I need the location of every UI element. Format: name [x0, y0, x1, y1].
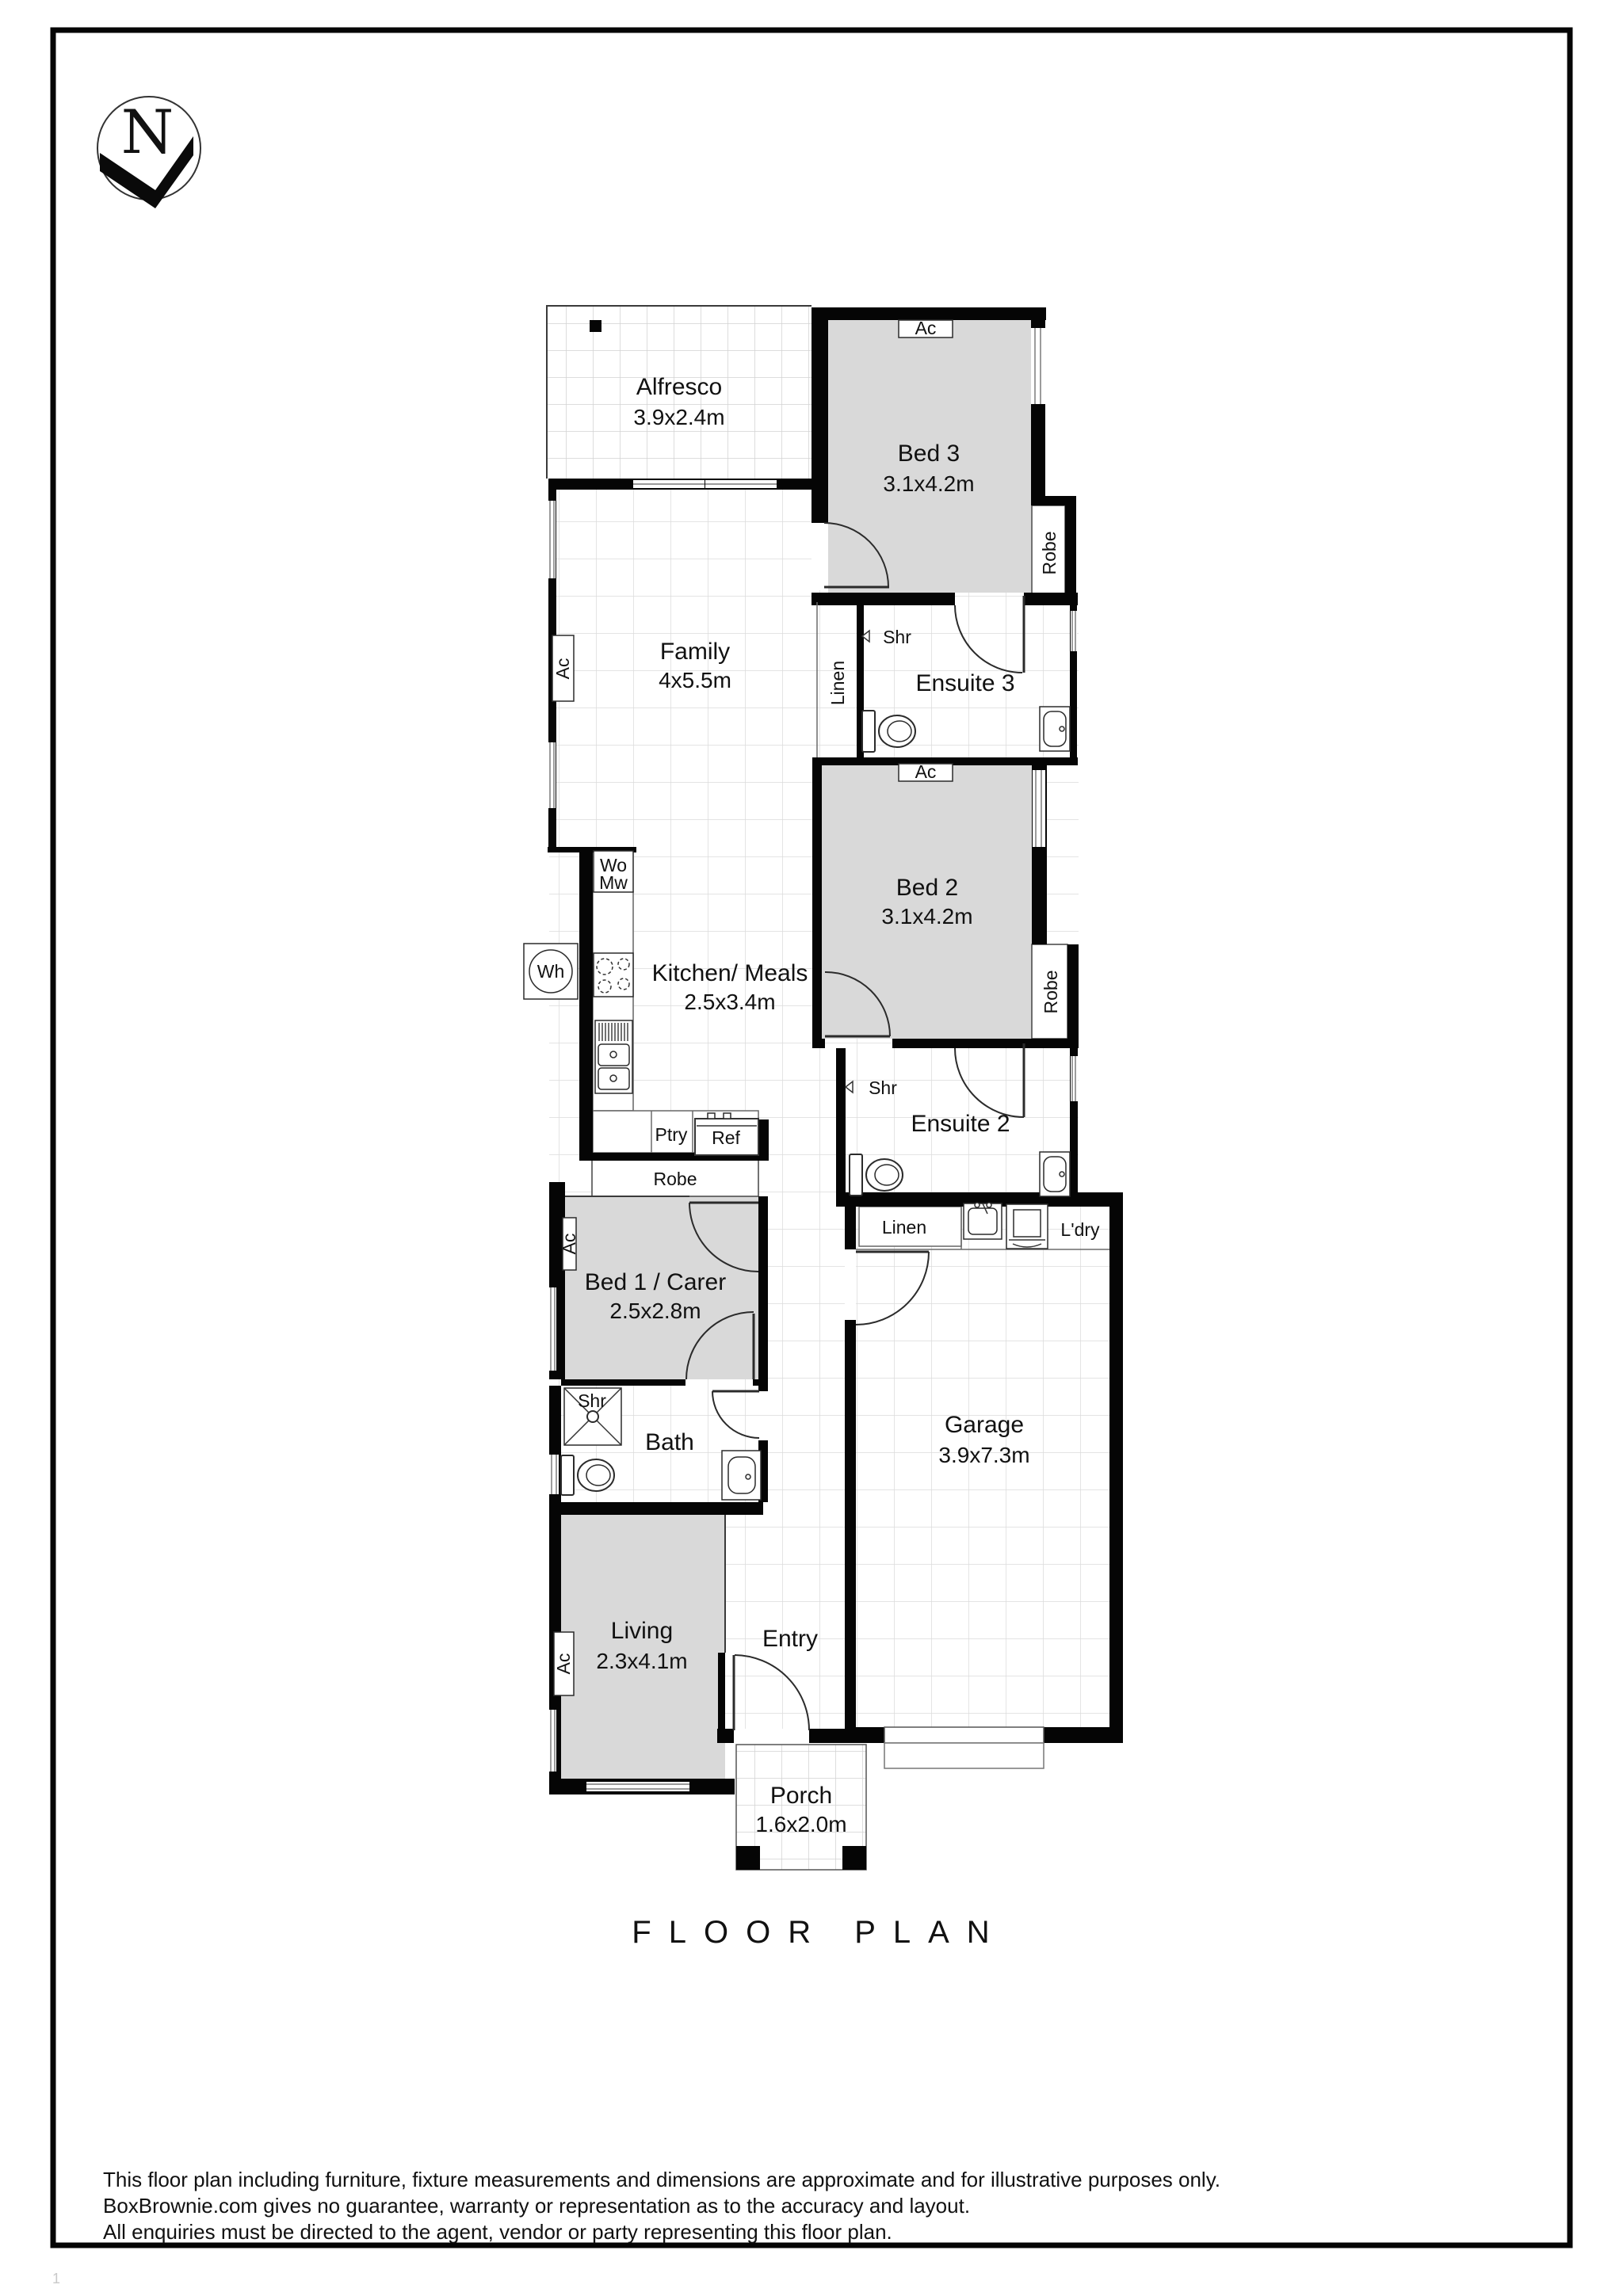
- label-robe-bed1: Robe: [654, 1169, 697, 1189]
- window-living-front: [586, 1782, 689, 1791]
- label-linen-upper: Linen: [827, 661, 848, 705]
- label-ac-family: Ac: [552, 658, 573, 680]
- floor-plan-page: N: [0, 0, 1623, 2296]
- room-dims-living: 2.3x4.1m: [596, 1649, 687, 1673]
- garage-door-opening: [884, 1727, 1044, 1743]
- room-label-bed2: Bed 2: [896, 875, 958, 901]
- window-living-side: [549, 1710, 556, 1772]
- room-label-porch: Porch: [770, 1783, 832, 1809]
- label-robe-bed3: Robe: [1039, 532, 1060, 575]
- floor-plan-drawing: N: [0, 0, 1623, 2296]
- window-ensuite3: [1071, 611, 1077, 651]
- room-dims-bed1: 2.5x2.8m: [609, 1299, 701, 1323]
- cooktop-icon: [594, 953, 633, 997]
- label-shr-bath: Shr: [578, 1390, 606, 1411]
- window-bed1: [549, 1287, 556, 1371]
- window-bath: [549, 1455, 559, 1494]
- window-alfresco-2: [705, 480, 777, 488]
- ensuite2-basin-icon: [1040, 1152, 1070, 1196]
- bed2-room: [822, 765, 1032, 1039]
- label-linen-lower: Linen: [882, 1217, 926, 1238]
- label-fridge: Ref: [712, 1127, 740, 1148]
- label-shr-ensuite3: Shr: [883, 627, 911, 647]
- room-label-living: Living: [611, 1618, 673, 1644]
- disclaimer-line-1: This floor plan including furniture, fix…: [103, 2168, 1220, 2191]
- label-pantry: Ptry: [655, 1124, 688, 1145]
- label-ldry: L'dry: [1060, 1219, 1100, 1240]
- room-label-family: Family: [660, 639, 730, 665]
- label-ac-living: Ac: [553, 1653, 574, 1675]
- window-bed2: [1033, 770, 1045, 847]
- room-label-garage: Garage: [945, 1412, 1024, 1438]
- label-microwave: Mw: [599, 872, 628, 893]
- label-shr-ensuite2: Shr: [869, 1077, 897, 1098]
- disclaimer-line-2: BoxBrownie.com gives no guarantee, warra…: [103, 2194, 970, 2218]
- kitchen-sink-icon: [595, 1020, 632, 1093]
- room-label-bed3: Bed 3: [898, 441, 960, 467]
- room-label-ensuite3: Ensuite 3: [915, 670, 1014, 696]
- laundry-trough-icon: [964, 1203, 1002, 1239]
- ensuite3-basin-icon: [1040, 707, 1070, 751]
- disclaimer: This floor plan including furniture, fix…: [103, 2168, 1220, 2244]
- room-dims-bed2: 3.1x4.2m: [881, 904, 972, 929]
- living-room: [561, 1515, 725, 1779]
- room-label-entry: Entry: [762, 1626, 818, 1652]
- room-label-ensuite2: Ensuite 2: [911, 1111, 1010, 1137]
- floor-plan-title: FLOOR PLAN: [632, 1915, 1006, 1950]
- room-label-bath: Bath: [645, 1429, 694, 1455]
- label-water-heater: Wh: [537, 961, 565, 982]
- label-robe-bed2: Robe: [1041, 971, 1061, 1014]
- washing-machine-icon: [1006, 1204, 1048, 1249]
- room-dims-family: 4x5.5m: [659, 668, 731, 692]
- disclaimer-line-3: All enquiries must be directed to the ag…: [103, 2220, 892, 2244]
- bath-basin-icon: [722, 1451, 761, 1500]
- north-letter: N: [121, 97, 174, 167]
- room-label-kitchen: Kitchen/ Meals: [652, 960, 808, 986]
- window-alfresco-1: [633, 480, 705, 488]
- porch-post-left: [736, 1846, 760, 1870]
- label-ac-bed3: Ac: [915, 318, 937, 338]
- room-dims-alfresco: 3.9x2.4m: [633, 405, 724, 429]
- room-label-bed1: Bed 1 / Carer: [585, 1269, 726, 1295]
- room-dims-porch: 1.6x2.0m: [755, 1812, 846, 1836]
- label-ac-bed2: Ac: [915, 761, 937, 782]
- north-arrow-icon: N: [97, 97, 200, 208]
- window-family-1: [548, 501, 556, 578]
- porch-post-right: [842, 1846, 866, 1870]
- page-mark: 1: [52, 2271, 60, 2286]
- room-dims-bed3: 3.1x4.2m: [883, 471, 974, 496]
- label-ac-bed1: Ac: [559, 1234, 579, 1255]
- bath-toilet-icon: [561, 1455, 614, 1495]
- window-ensuite2: [1071, 1056, 1078, 1101]
- garage-door-panel: [884, 1743, 1044, 1768]
- window-family-2: [548, 742, 556, 808]
- window-bed3: [1032, 328, 1044, 404]
- room-dims-kitchen: 2.5x3.4m: [684, 990, 775, 1014]
- room-dims-garage: 3.9x7.3m: [938, 1443, 1029, 1467]
- room-label-alfresco: Alfresco: [636, 374, 722, 400]
